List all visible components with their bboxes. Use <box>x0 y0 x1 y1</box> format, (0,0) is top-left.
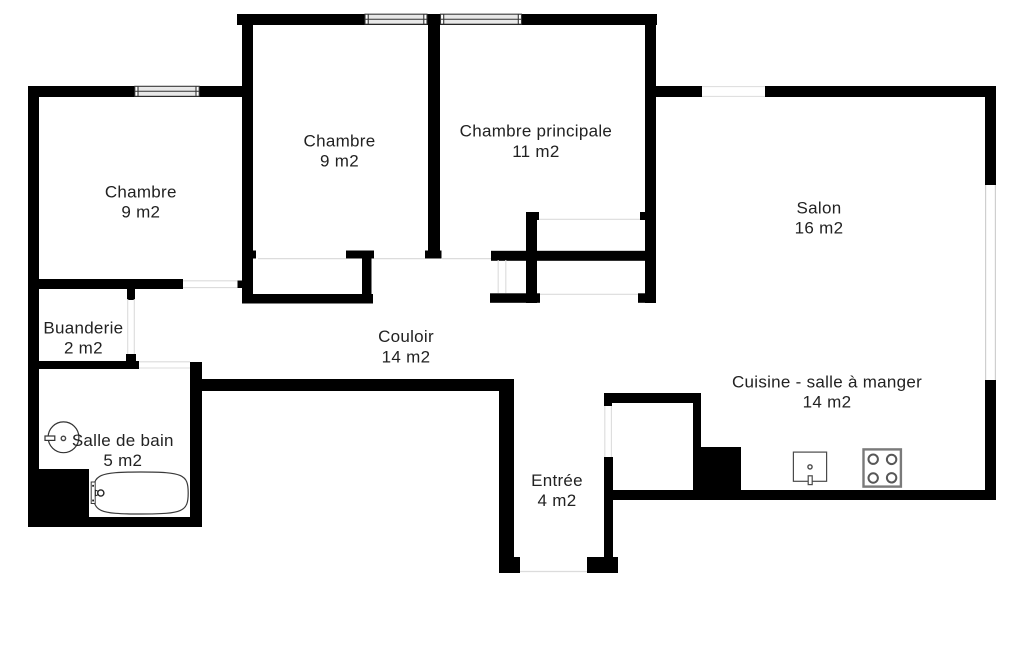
svg-text:4 m2: 4 m2 <box>538 491 577 510</box>
svg-text:Entrée: Entrée <box>531 471 583 490</box>
svg-text:Salon: Salon <box>797 198 842 217</box>
svg-text:Chambre principale: Chambre principale <box>460 122 612 141</box>
svg-text:Chambre: Chambre <box>105 182 177 201</box>
svg-text:16 m2: 16 m2 <box>795 219 844 238</box>
svg-text:14 m2: 14 m2 <box>803 393 852 412</box>
svg-text:Couloir: Couloir <box>378 327 434 346</box>
svg-text:11 m2: 11 m2 <box>512 142 559 161</box>
svg-text:5 m2: 5 m2 <box>103 451 142 470</box>
svg-text:2 m2: 2 m2 <box>64 339 103 358</box>
svg-text:Chambre: Chambre <box>304 131 376 150</box>
svg-text:14 m2: 14 m2 <box>382 347 431 366</box>
svg-text:9 m2: 9 m2 <box>121 203 160 222</box>
svg-text:Buanderie: Buanderie <box>43 319 123 338</box>
svg-text:Cuisine - salle à manger: Cuisine - salle à manger <box>732 373 922 392</box>
svg-text:9 m2: 9 m2 <box>320 152 359 171</box>
svg-text:Salle de bain: Salle de bain <box>72 431 174 450</box>
